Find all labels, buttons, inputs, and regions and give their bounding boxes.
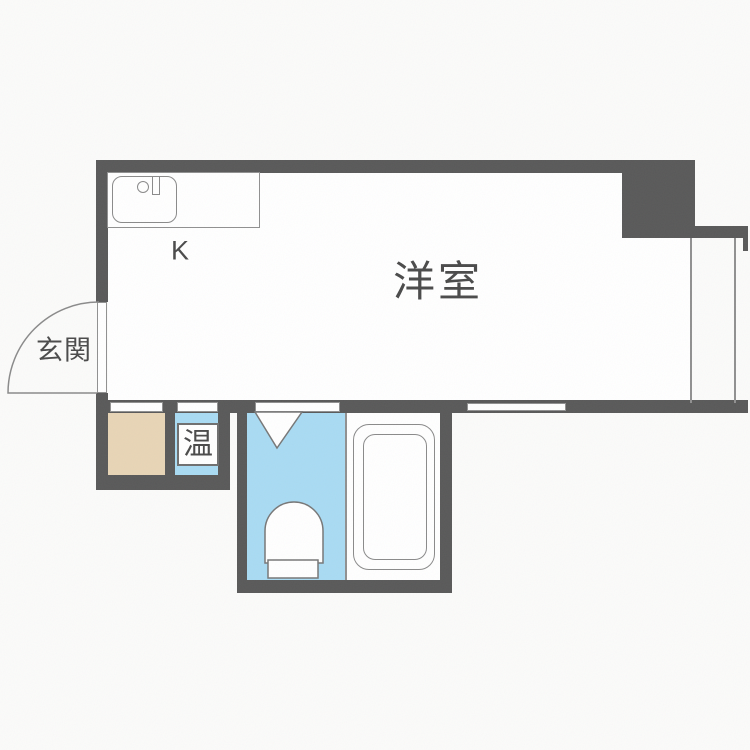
wall-bath-right [440,400,452,593]
wall-top-right-bar [695,226,748,238]
wall-pillar-top-right [622,160,695,238]
faucet-knob-icon [137,181,149,193]
entrance-floor [108,413,165,475]
entrance-door-leaf [97,302,107,393]
window-bottom [467,403,566,411]
bathtub-inner [363,434,427,560]
window-right-outer-line [734,238,736,403]
toilet-doorway-opening [255,402,340,412]
water-heater-opening [177,402,218,412]
wall-entrance-block-bottom [96,475,230,490]
window-right-inner-line [690,238,692,403]
wall-wet-area-bottom [237,580,452,593]
label-water-heater: 温 [183,430,213,460]
toilet-floor [247,413,345,580]
floor-plan: 洋室 K 玄関 温 [0,0,750,750]
room-label-western-room: 洋室 [393,261,483,303]
wall-toilet-left [237,400,247,593]
wall-entrance-heater-divider [165,400,175,475]
faucet-spout-icon [152,176,160,195]
toilet-bath-divider-line [345,413,347,580]
room-label-kitchen: K [171,238,189,265]
entrance-step-opening [110,402,163,412]
room-label-entrance: 玄関 [36,338,92,365]
wall-right-stub [743,238,748,251]
